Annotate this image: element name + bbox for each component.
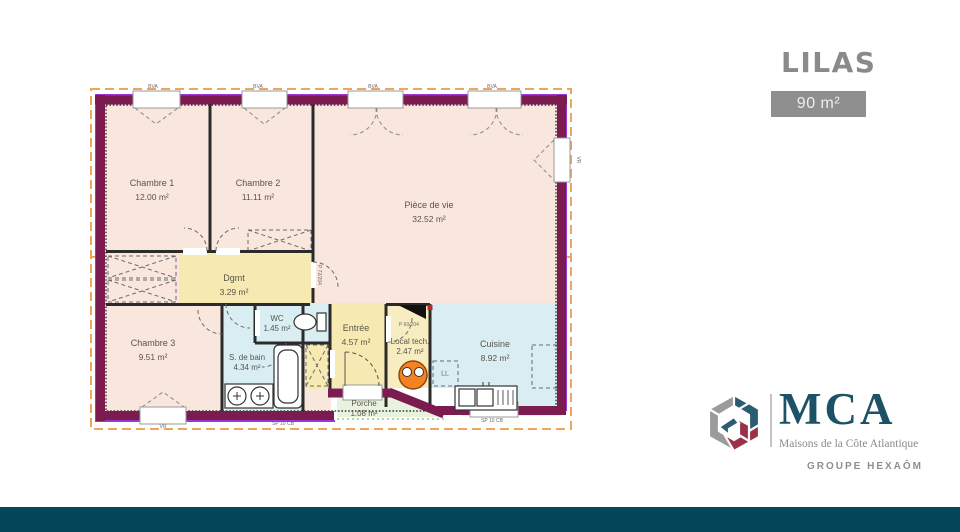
mca-logo: MCA Maisons de la Côte Atlantique GROUPE… bbox=[705, 390, 925, 480]
kitchen-fixtures bbox=[455, 382, 517, 410]
door-size-label: P 72/204 bbox=[316, 265, 322, 285]
roller-shutter-label: VR bbox=[575, 157, 581, 164]
room-label-piece-de-vie: Pièce de vie 32.52 m² bbox=[404, 201, 453, 224]
room-label-cuisine: Cuisine 8.92 m² bbox=[480, 340, 510, 363]
toilet-bowl bbox=[294, 314, 316, 330]
logo-divider bbox=[770, 394, 772, 447]
footer-bar bbox=[0, 507, 960, 532]
room-label-chambre3: Chambre 3 9.51 m² bbox=[131, 339, 176, 362]
roller-shutter-label: VR bbox=[160, 424, 167, 430]
slab-label: SP 10 CB bbox=[272, 421, 294, 427]
room-label-chambre2: Chambre 2 11.11 m² bbox=[236, 179, 281, 202]
area-badge-value: 90 m² bbox=[797, 95, 840, 113]
slab-label: SP 10 CB bbox=[481, 418, 503, 424]
shutter-label: BVA bbox=[368, 84, 378, 90]
kitchen-sink bbox=[459, 389, 475, 406]
toilet-tank bbox=[317, 313, 326, 331]
room-label-local-tech: Local tech. 2.47 m² bbox=[391, 338, 430, 356]
area-badge: 90 m² bbox=[771, 91, 866, 117]
shutter-label: BVA bbox=[487, 84, 497, 90]
room-label-wc: WC 1.45 m² bbox=[263, 315, 290, 333]
page-title: LILAS bbox=[781, 46, 876, 79]
room-label-chambre1: Chambre 1 12.00 m² bbox=[130, 179, 175, 202]
plan-page: Chambre 1 12.00 m² Chambre 2 11.11 m² Pi… bbox=[0, 0, 960, 532]
room-label-salle-de-bain: S. de bain 4.34 m² bbox=[229, 354, 265, 372]
shutter-label: BVA bbox=[148, 84, 158, 90]
brand-tagline: Maisons de la Côte Atlantique bbox=[779, 438, 929, 450]
door-size-label: P 60/204 bbox=[399, 322, 419, 328]
kitchen-sink bbox=[477, 389, 493, 406]
room-label-dgmt: Dgmt 3.29 m² bbox=[220, 274, 249, 297]
brand-group: GROUPE HEXAÔM bbox=[779, 461, 923, 472]
shutter-label: BVA bbox=[253, 84, 263, 90]
mca-cube-icon bbox=[705, 393, 764, 451]
washer-label: LL bbox=[441, 371, 449, 378]
room-label-porche: Porche 1.08 m² bbox=[350, 400, 377, 418]
room-label-entree: Entrée 4.57 m² bbox=[342, 324, 371, 347]
brand-name: MCA bbox=[779, 385, 895, 435]
